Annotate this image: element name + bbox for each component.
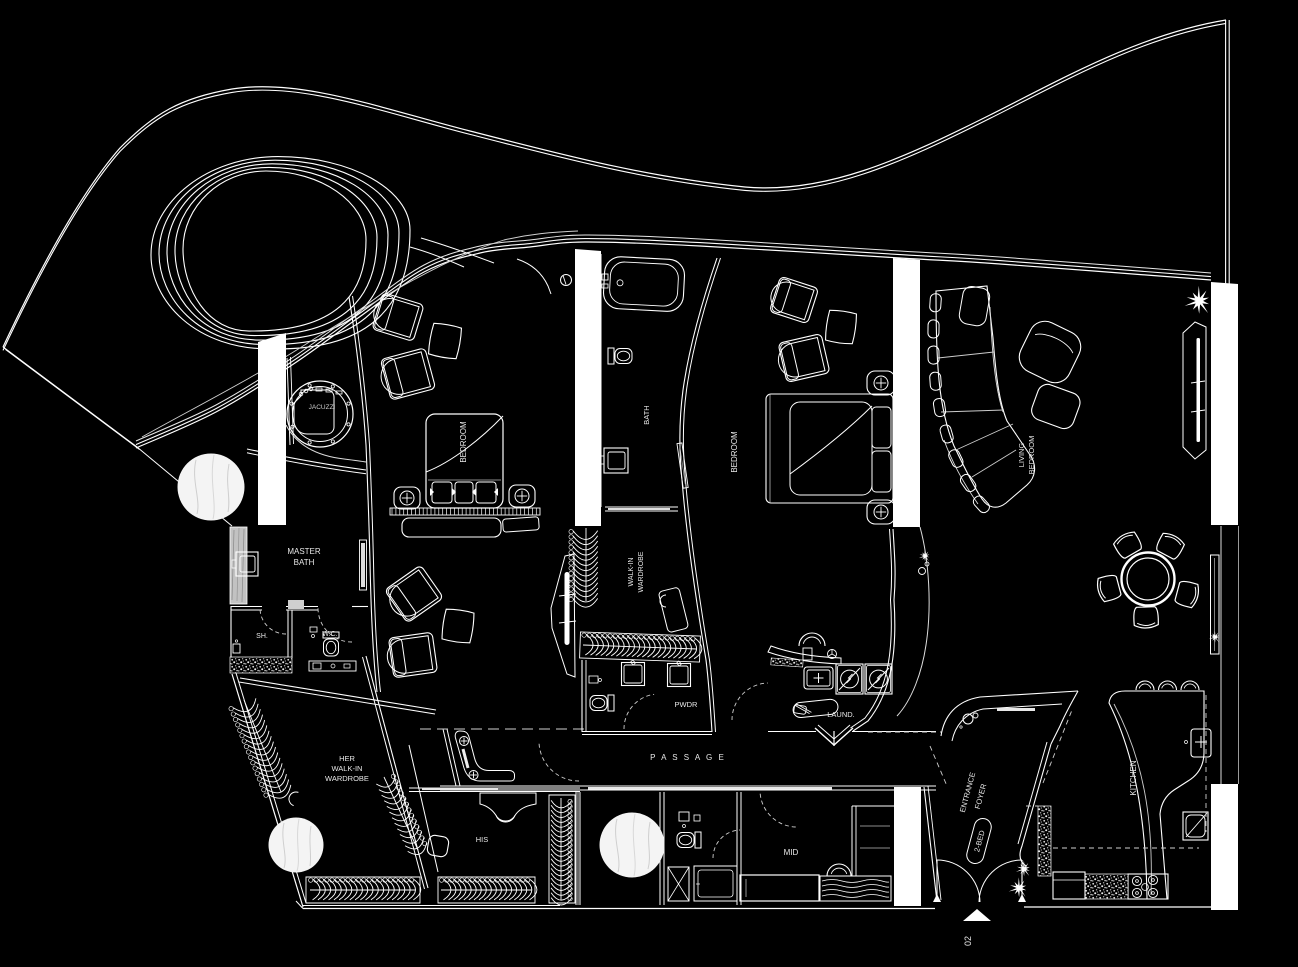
svg-text:02: 02: [963, 936, 973, 946]
svg-text:WARDROBE: WARDROBE: [325, 774, 369, 783]
svg-text:W.C.: W.C.: [322, 631, 337, 638]
svg-text:SH.: SH.: [256, 633, 268, 640]
svg-text:BATH: BATH: [642, 405, 651, 424]
svg-text:LAUND.: LAUND.: [827, 710, 855, 719]
svg-text:BEDROOM: BEDROOM: [1027, 436, 1036, 475]
svg-text:PWDR: PWDR: [675, 700, 698, 709]
svg-text:BEDROOM: BEDROOM: [459, 421, 468, 463]
svg-text:P A S S A G E: P A S S A G E: [650, 753, 726, 762]
svg-text:WALK-IN: WALK-IN: [332, 764, 363, 773]
svg-text:HIS: HIS: [476, 835, 489, 844]
svg-text:LIVING: LIVING: [1017, 443, 1026, 468]
svg-text:MASTER: MASTER: [287, 547, 321, 556]
svg-text:BATH: BATH: [294, 558, 315, 567]
svg-text:WALK-IN: WALK-IN: [628, 558, 635, 587]
svg-text:BEDROOM: BEDROOM: [730, 431, 739, 473]
svg-text:HER: HER: [339, 754, 355, 763]
svg-text:KITCHEN: KITCHEN: [1129, 760, 1138, 795]
svg-text:JACUZZI: JACUZZI: [309, 404, 336, 411]
svg-text:WARDROBE: WARDROBE: [638, 551, 645, 592]
svg-text:MID: MID: [784, 848, 799, 857]
